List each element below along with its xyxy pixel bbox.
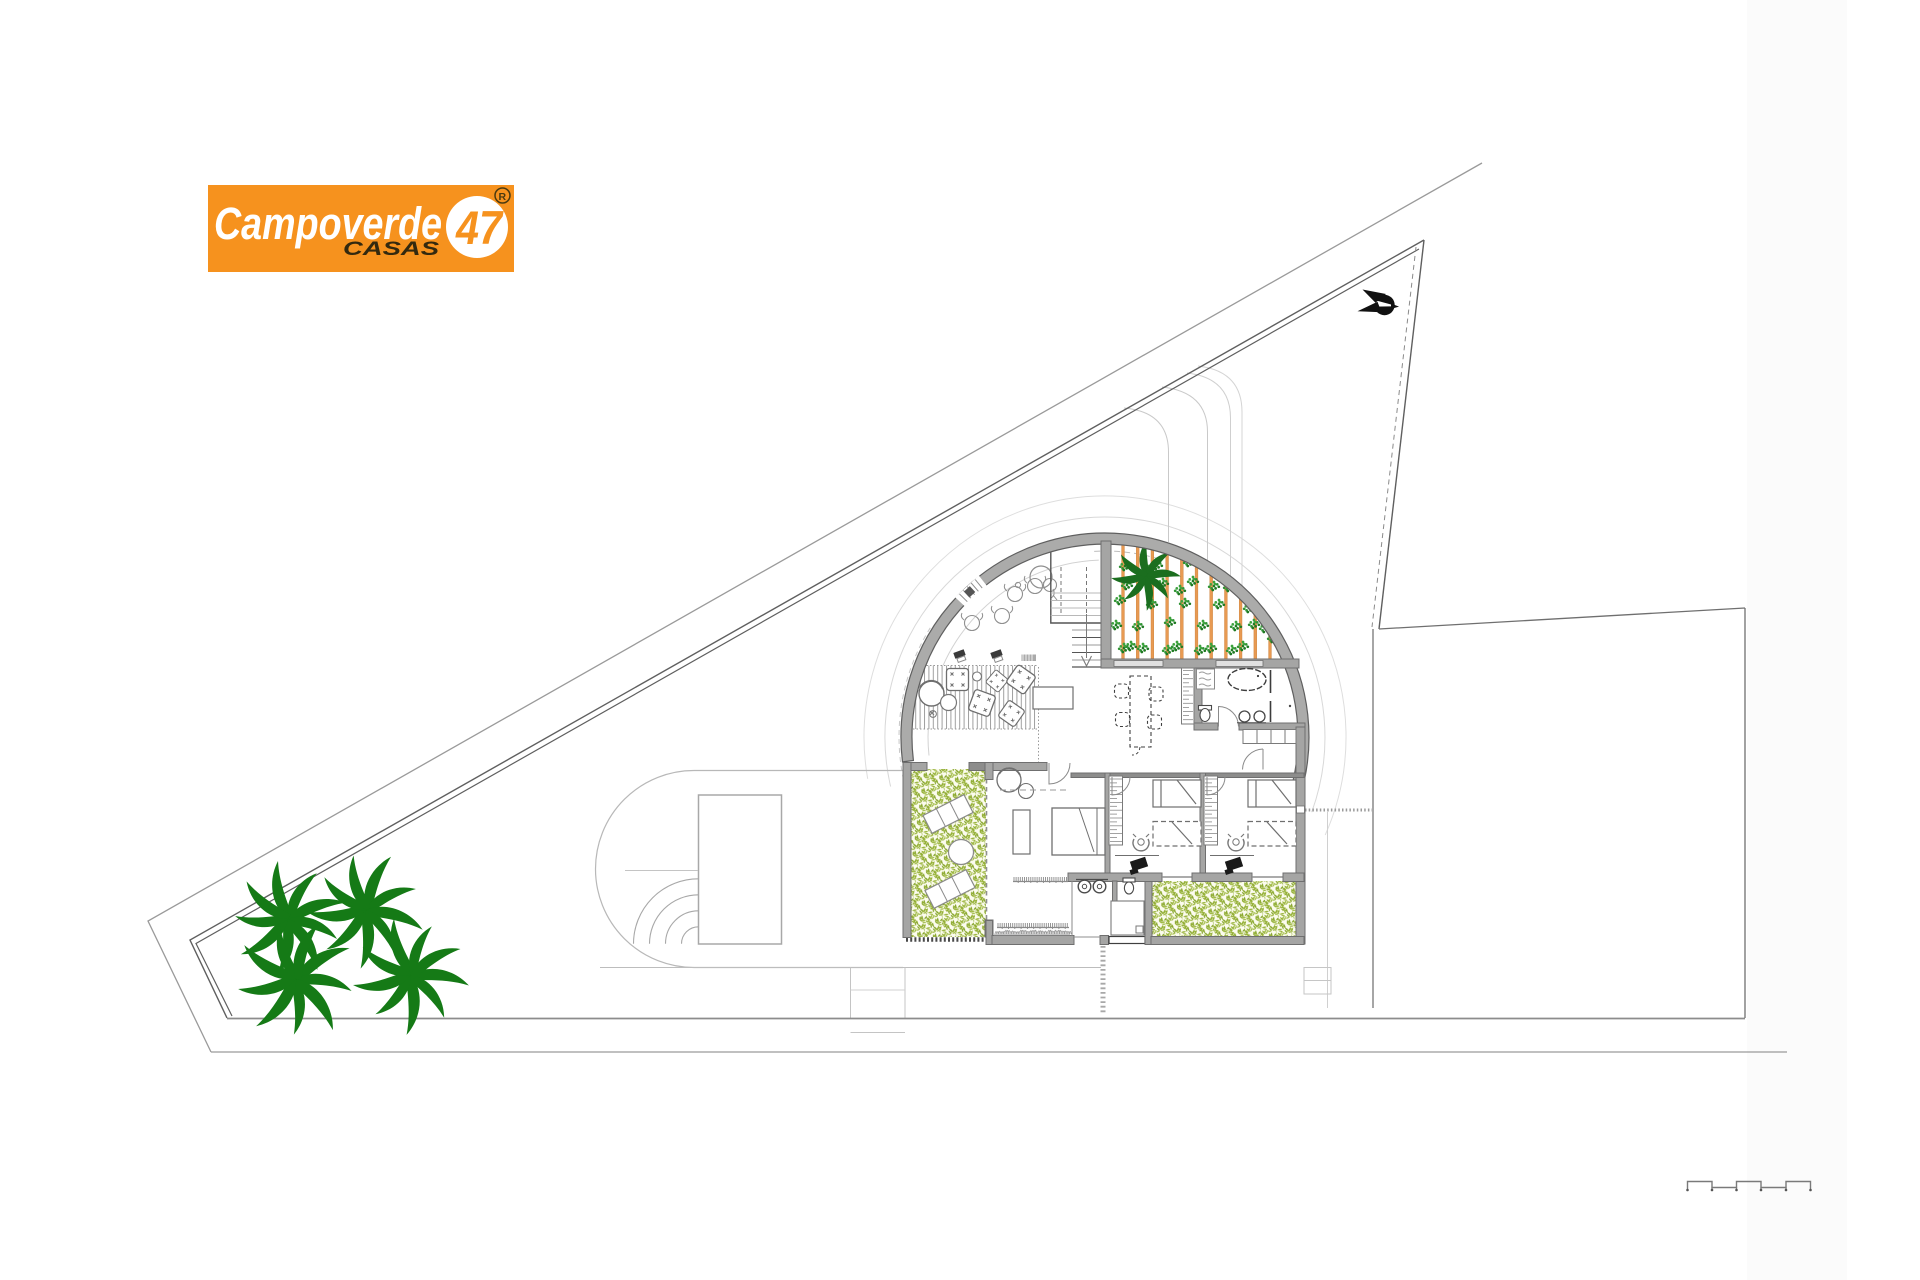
svg-text:47: 47 [455,201,504,254]
svg-text:CASAS: CASAS [343,239,439,260]
svg-text:R: R [499,191,507,203]
